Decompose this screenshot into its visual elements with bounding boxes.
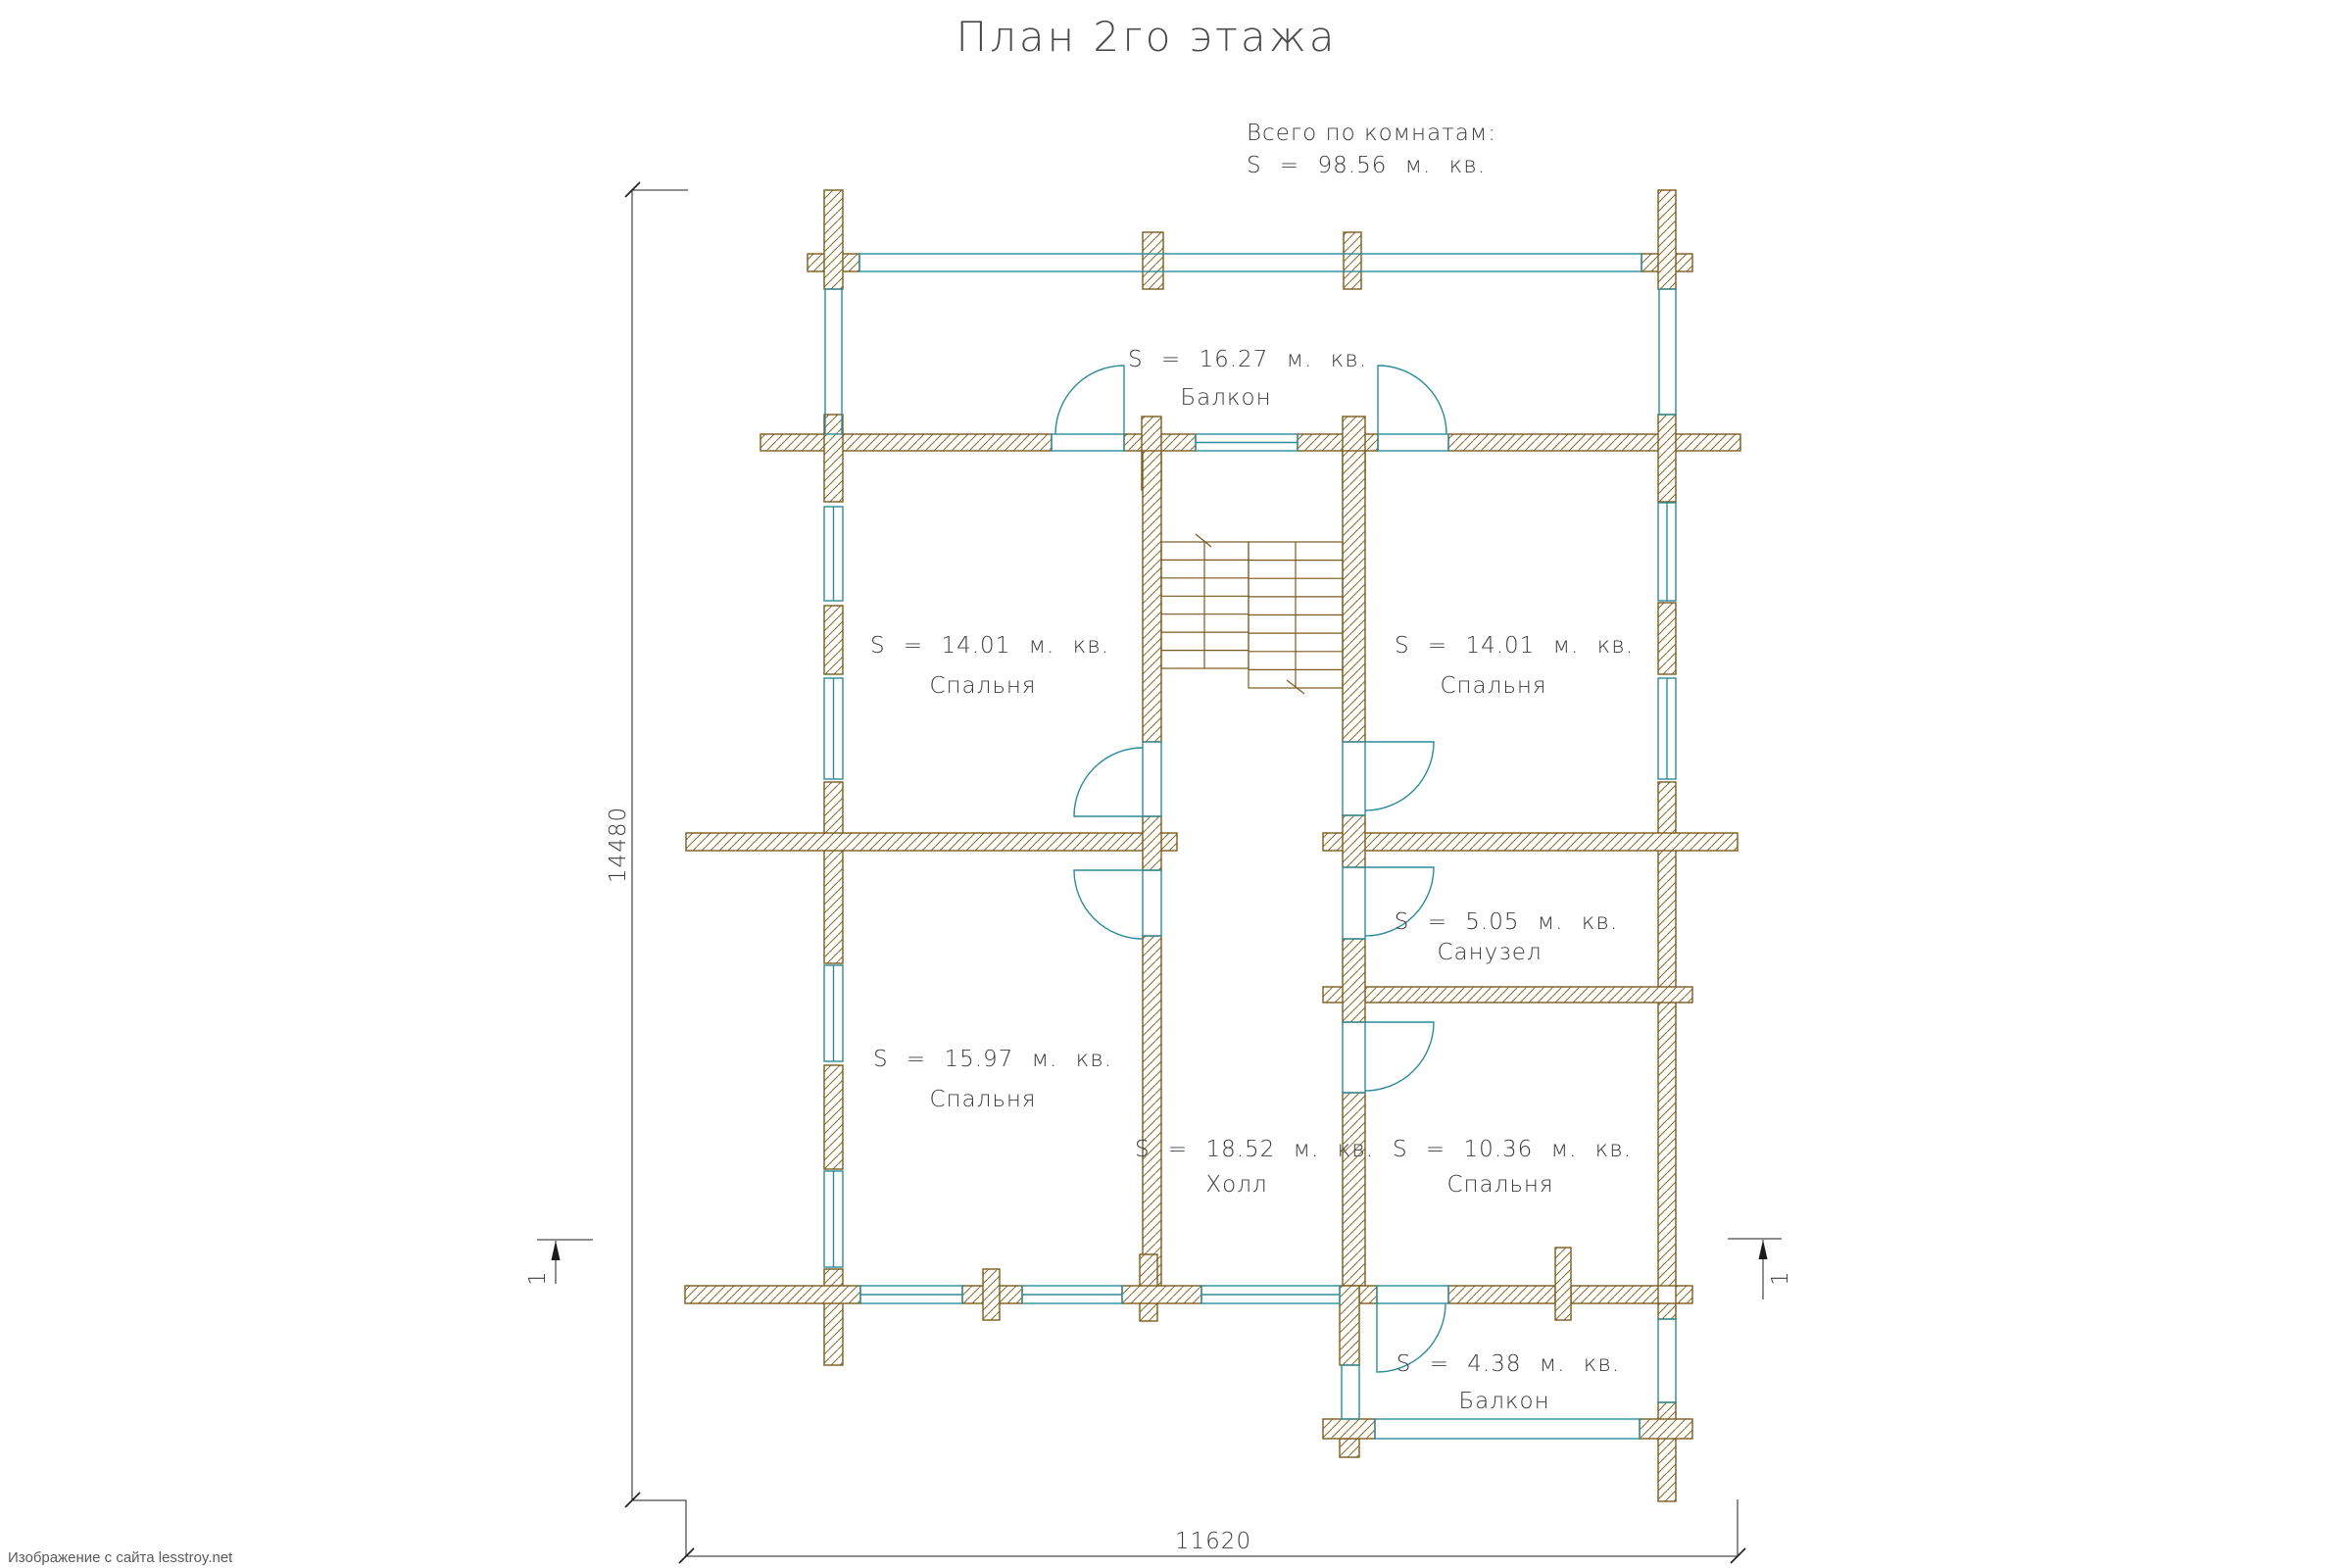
wall-post [983,1269,1000,1320]
stair-break-mark [1196,534,1211,547]
door-swing [1378,366,1446,434]
balcony-cap [1640,1419,1692,1439]
balcony-cap [1323,1419,1375,1439]
room-area-label: S = 15.97 м. кв. [873,1047,1112,1072]
balcony-post-left [824,190,843,289]
balcony-rail-post [1344,232,1361,289]
wall [1323,987,1692,1003]
section-mark-label-left: 1 [525,1270,551,1286]
room-name-label: Санузел [1437,940,1542,965]
summary-heading: Всего по комнатам: [1247,121,1496,146]
wall [1658,603,1676,674]
door-swing [1074,870,1143,939]
room-name-label: Холл [1205,1172,1267,1198]
door-swing [1074,748,1143,816]
wall [1658,782,1676,1286]
wall [760,434,1052,451]
wall [1448,434,1740,451]
wall [685,1286,860,1303]
wall-post [1658,415,1676,502]
wall [1343,815,1365,867]
balcony-rail-post [1143,232,1163,289]
section-mark-label-right: 1 [1768,1270,1793,1286]
room-name-label: Балкон [1180,385,1271,411]
door-opening [1143,742,1161,816]
wall [1122,1286,1201,1303]
page-title: План 2го этажа [955,13,1337,61]
room-area-label: S = 16.27 м. кв. [1128,347,1367,372]
balcony-post [1340,1439,1359,1457]
wall [1143,816,1161,870]
railing [859,254,1641,271]
dimension-height-value: 14480 [606,807,631,883]
wall-post [1555,1248,1571,1320]
wall [1676,1286,1692,1303]
door-swing [1365,1022,1434,1091]
room-name-label: Спальня [929,673,1036,699]
watermark: Изображение с сайта lesstroy.net [8,1549,233,1566]
wall [1359,1286,1377,1303]
floor-plan-page: План 2го этажа Всего по комнатам: S = 98… [0,0,2352,1568]
railing [1342,1365,1359,1419]
room-area-label: S = 4.38 м. кв. [1396,1351,1620,1377]
room-name-label: Балкон [1458,1389,1549,1414]
summary-total: S = 98.56 м. кв. [1247,153,1486,178]
wall [824,606,843,674]
room-area-label: S = 5.05 м. кв. [1395,909,1618,935]
door-opening [1377,1286,1448,1303]
wall [1343,1093,1365,1286]
room-area-label: S = 10.36 м. кв. [1393,1137,1632,1162]
dimension-width-value: 11620 [1175,1529,1251,1554]
wall [1143,936,1161,1286]
wall [1143,451,1161,742]
door-opening [1052,434,1124,451]
wall [1343,451,1365,742]
room-area-label: S = 18.52 м. кв. [1135,1137,1374,1162]
door-opening [1343,1022,1365,1093]
text-layer: План 2го этажа Всего по комнатам: S = 98… [8,13,1793,1566]
door-swing [1365,742,1434,810]
wall [1343,939,1365,1022]
wall [1658,1402,1676,1501]
room-area-label: S = 14.01 м. кв. [1395,633,1634,659]
door-opening [1378,434,1448,451]
floor-plan-svg: План 2го этажа Всего по комнатам: S = 98… [0,0,2352,1568]
door-opening [1143,870,1161,936]
railing [1375,1419,1640,1439]
wall [824,1269,843,1365]
window [1658,1319,1676,1402]
wall [1323,833,1738,851]
balcony-post-right [1658,190,1676,289]
stairs-layer [1161,534,1343,694]
balcony-post [1340,1286,1359,1365]
room-name-label: Спальня [1446,1172,1553,1198]
wall [686,833,1177,851]
section-mark-right [1728,1239,1782,1299]
door-opening [1343,742,1365,815]
room-area-label: S = 14.01 м. кв. [870,633,1109,659]
door-opening [1343,867,1365,939]
railing [1659,289,1676,415]
wall-post [824,415,843,502]
doors-layer [1052,366,1448,1372]
wall [1658,1303,1676,1319]
wall [824,782,843,963]
door-swing [1055,366,1124,434]
wall [1448,1286,1555,1303]
railing [825,289,842,434]
room-name-label: Спальня [929,1087,1036,1112]
room-name-label: Спальня [1440,673,1546,699]
wall [824,1065,843,1169]
wall [1571,1286,1658,1303]
